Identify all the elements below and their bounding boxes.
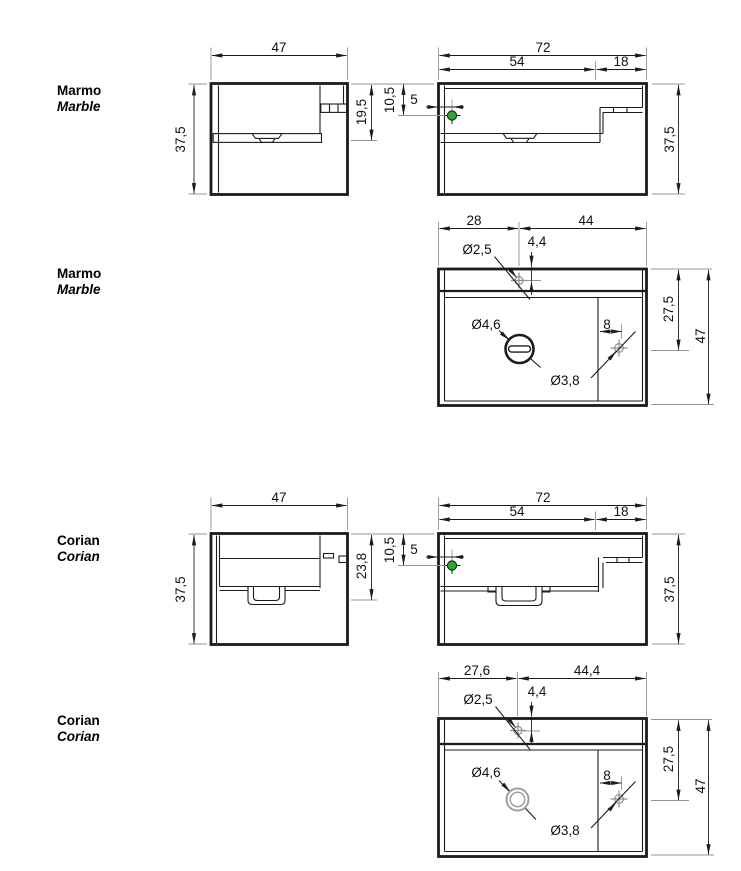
dim-faucet-dia: Ø2,5	[462, 242, 491, 257]
dim-hole-from-back: 4,4	[528, 234, 547, 249]
dim-ledge-width: 18	[613, 54, 628, 69]
dim-drain-dia: Ø4,6	[471, 317, 500, 332]
dim-width: 47	[271, 490, 286, 505]
dim-height: 37,5	[662, 126, 677, 152]
dim-hole-from-left: 28	[466, 213, 481, 228]
dim-depth: 47	[693, 778, 708, 793]
corian-side-view: 47 37,5 23,8	[173, 490, 434, 645]
dim-depth: 47	[693, 328, 708, 343]
faucet-hole-marker	[447, 111, 456, 120]
dim-overflow-dia: Ø3,8	[550, 823, 579, 838]
dim-hole-from-edge: 5	[410, 542, 418, 557]
dim-overflow-offset: 8	[603, 768, 611, 783]
dim-width: 72	[535, 40, 550, 55]
dim-overflow-dia: Ø3,8	[550, 373, 579, 388]
basin-outline	[439, 269, 647, 406]
dim-overflow-offset: 8	[603, 317, 611, 332]
basin-outline	[439, 719, 647, 857]
dim-basin-depth: 19,5	[354, 99, 369, 125]
marmo-side-view: 47 37,5 19,5	[173, 40, 434, 195]
marmo-front-view: 72 54 18 10,5 5 37,5	[382, 40, 685, 195]
faucet-hole-marker	[447, 561, 456, 570]
dim-overflow-from-back: 27,5	[661, 746, 676, 772]
dim-basin-width: 54	[509, 504, 525, 519]
dim-faucet-dia: Ø2,5	[463, 692, 492, 707]
dim-drain-dia: Ø4,6	[471, 765, 500, 780]
dim-hole-from-left: 27,6	[464, 663, 490, 678]
dim-hole-to-right: 44,4	[574, 663, 601, 678]
dim-basin-depth: 23,8	[354, 553, 369, 579]
dim-hole-from-edge: 5	[410, 92, 418, 107]
dim-ledge-width: 18	[613, 504, 628, 519]
cabinet-outline	[211, 84, 348, 195]
dim-height: 37,5	[173, 126, 188, 152]
marmo-plan-view: 28 44 4,4 Ø2,5 Ø4,6 Ø3,8 8 27,5 47	[439, 213, 715, 406]
dim-hole-from-top: 10,5	[382, 537, 397, 563]
dim-overflow-from-back: 27,5	[661, 296, 676, 322]
dim-width: 72	[535, 490, 550, 505]
drain-slot	[509, 346, 531, 352]
dim-basin-width: 54	[509, 54, 525, 69]
cabinet-outline	[439, 84, 647, 195]
drawing-sheet: Marmo Marble Marmo Marble Corian Corian …	[0, 0, 741, 871]
cad-canvas: 47 37,5 19,5 72 54 18 10,5 5	[0, 0, 741, 871]
dim-hole-to-right: 44	[578, 213, 594, 228]
dim-hole-from-top: 10,5	[382, 87, 397, 113]
dim-width: 47	[271, 40, 286, 55]
corian-front-view: 72 54 18 10,5 5 37,5	[382, 490, 685, 645]
dim-height: 37,5	[662, 576, 677, 602]
dim-height: 37,5	[173, 576, 188, 602]
dim-hole-from-back: 4,4	[528, 684, 547, 699]
corian-plan-view: 27,6 44,4 4,4 Ø2,5 Ø4,6 Ø3,8 8 27,5 47	[439, 663, 715, 857]
